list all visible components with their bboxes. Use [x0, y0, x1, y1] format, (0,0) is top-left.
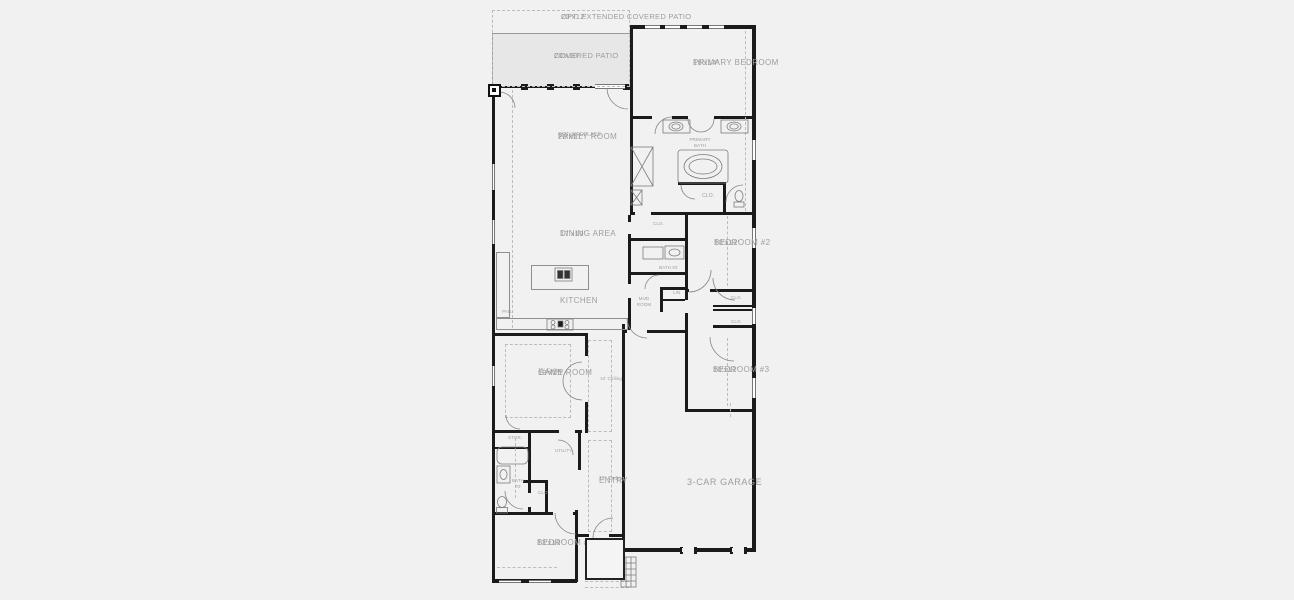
shower-icon [631, 147, 653, 186]
toilet-icon [735, 191, 743, 202]
vanity [497, 466, 510, 483]
room-dims: 20'x10' [554, 51, 579, 60]
room-note: 11' Ceiling [538, 368, 563, 374]
sink-icon [672, 124, 680, 129]
sink-icon [730, 124, 738, 129]
room-name: CLO. [731, 319, 742, 325]
room-name: PAN. [502, 309, 513, 315]
room-name: BATH #3 [510, 478, 526, 489]
room-name: CLO. [702, 193, 714, 199]
room-note: 12' Ceiling [599, 476, 624, 482]
room-name: CLO. [731, 295, 742, 301]
vanity [665, 246, 684, 259]
room-dims: 10'x12' [713, 365, 738, 374]
tub-platform [678, 150, 728, 183]
range-icon [551, 321, 555, 325]
porch-outline [585, 538, 625, 580]
room-name: STOR. [508, 435, 522, 441]
toilet-icon [497, 508, 508, 514]
room-name: CLO. [653, 221, 664, 227]
toilet-icon [498, 497, 507, 508]
room-dims: 20'x17' [558, 132, 583, 141]
sink-icon [669, 122, 683, 131]
sink-icon [500, 470, 507, 480]
room-dims: 13'x10' [537, 538, 562, 547]
range-icon [551, 325, 555, 329]
floor-plan-page: OPT. EXTENDED COVERED PATIO 20'x12' COVE… [0, 0, 1294, 600]
room-name: UTILITY [555, 448, 572, 454]
room-dims: 18'x14' [693, 58, 718, 67]
room-name: KITCHEN [560, 296, 598, 306]
range-icon [558, 321, 563, 327]
range-icon [565, 325, 569, 329]
sink-icon [669, 249, 680, 256]
door-arc [499, 88, 743, 538]
floor-plan: OPT. EXTENDED COVERED PATIO 20'x12' COVE… [485, 6, 775, 598]
room-name: LIN. [673, 290, 682, 296]
room-name: BATH #2 [659, 265, 678, 271]
sink-icon [727, 122, 741, 131]
linen-chase [631, 190, 642, 205]
tub-icon [684, 155, 722, 179]
toilet-icon [734, 202, 744, 207]
range-icon [565, 321, 569, 325]
electrical-panel-icon [488, 84, 501, 97]
room-note: 10' Ceiling [600, 376, 622, 382]
room-name: 3-CAR GARAGE [687, 477, 762, 488]
tub-icon [497, 447, 528, 464]
fixtures-layer [485, 6, 775, 598]
sink-icon [565, 271, 571, 279]
room-dims: 17'x10' [560, 229, 585, 238]
room-name: CLO. [538, 490, 549, 496]
room-name: PRIMARY BATH [684, 137, 716, 148]
room-name: MUD ROOM [632, 296, 656, 307]
tub-icon [643, 247, 663, 259]
room-dims: 20'x12' [561, 12, 586, 21]
tub-icon [689, 159, 717, 174]
room-dims: 10'x12' [714, 238, 739, 247]
sink-icon [558, 271, 564, 279]
